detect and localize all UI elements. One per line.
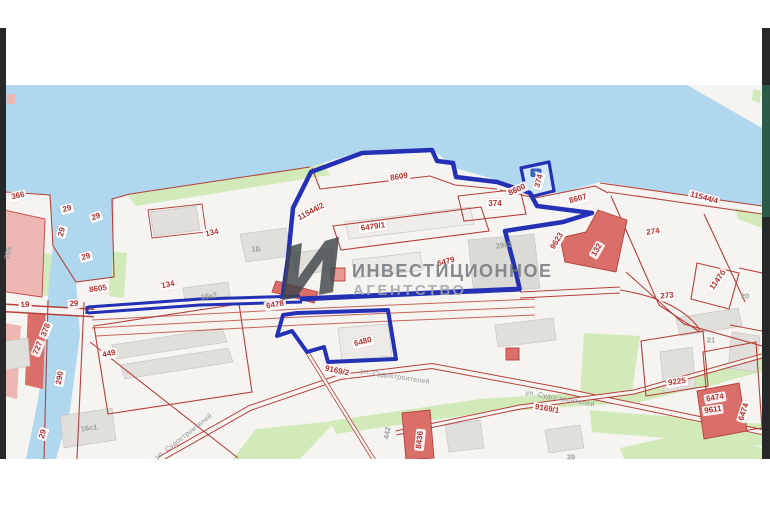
- building: [2, 338, 30, 370]
- building: [292, 248, 336, 275]
- building-pink-small: [7, 94, 15, 104]
- building-1b: [240, 228, 292, 262]
- building-9611: [697, 383, 747, 439]
- frame-right-green-accent: [762, 85, 770, 217]
- building-6480: [338, 324, 392, 360]
- map-canvas[interactable]: [0, 0, 770, 510]
- building-29k3: [468, 234, 540, 294]
- green-strip: [580, 333, 640, 396]
- building: [660, 347, 696, 393]
- frame-left-strip: [0, 28, 6, 459]
- building-pink-large: [0, 209, 45, 297]
- building-8436: [402, 410, 434, 460]
- map-screenshot: 366292929298605291913413416к21Б11544/286…: [0, 0, 770, 510]
- map-empty-top: [6, 28, 762, 85]
- building: [445, 420, 484, 452]
- building-red-small: [331, 268, 345, 281]
- building-red-small: [506, 348, 519, 360]
- building: [545, 425, 584, 453]
- water-marker-dot: [535, 171, 537, 173]
